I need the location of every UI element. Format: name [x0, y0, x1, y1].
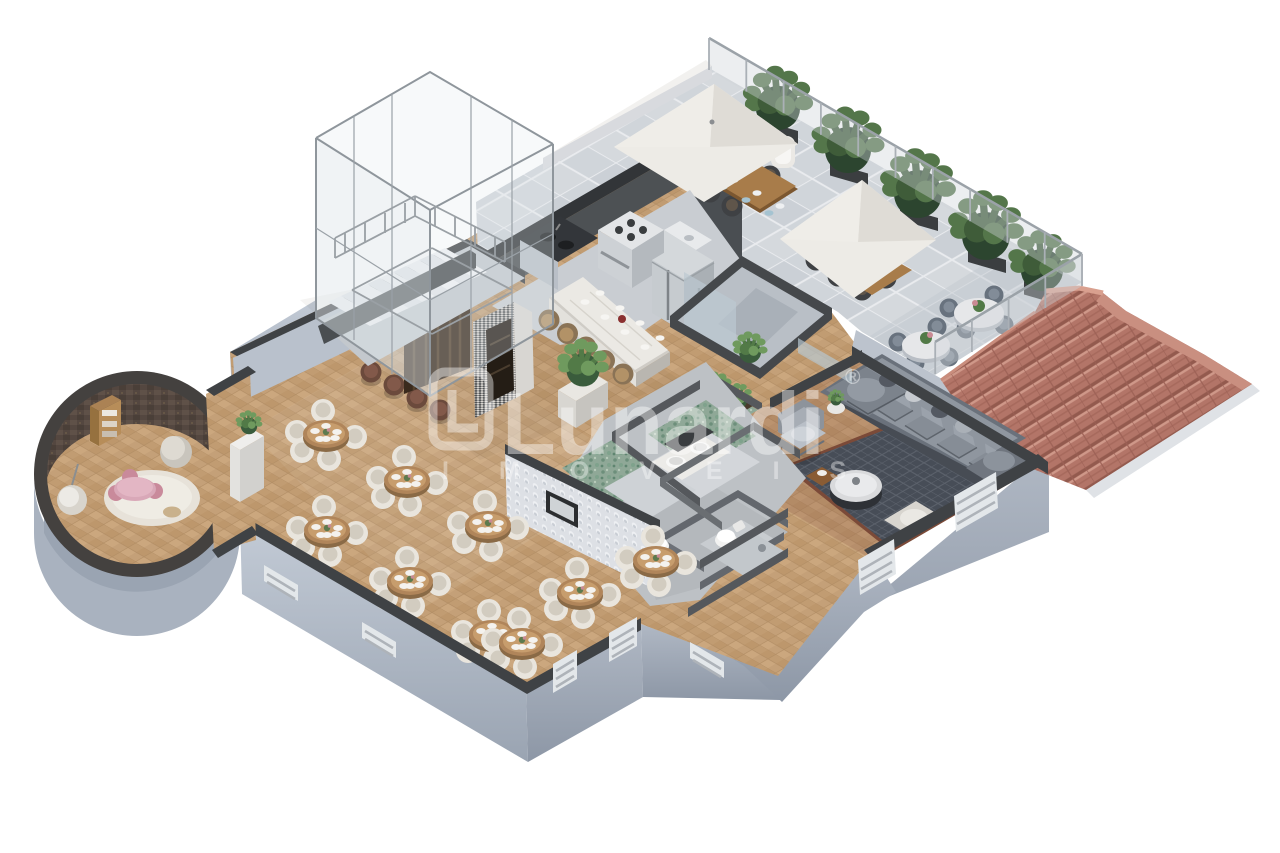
- svg-text:®: ®: [845, 366, 861, 389]
- svg-text:IMÓVEIS: IMÓVEIS: [442, 455, 896, 485]
